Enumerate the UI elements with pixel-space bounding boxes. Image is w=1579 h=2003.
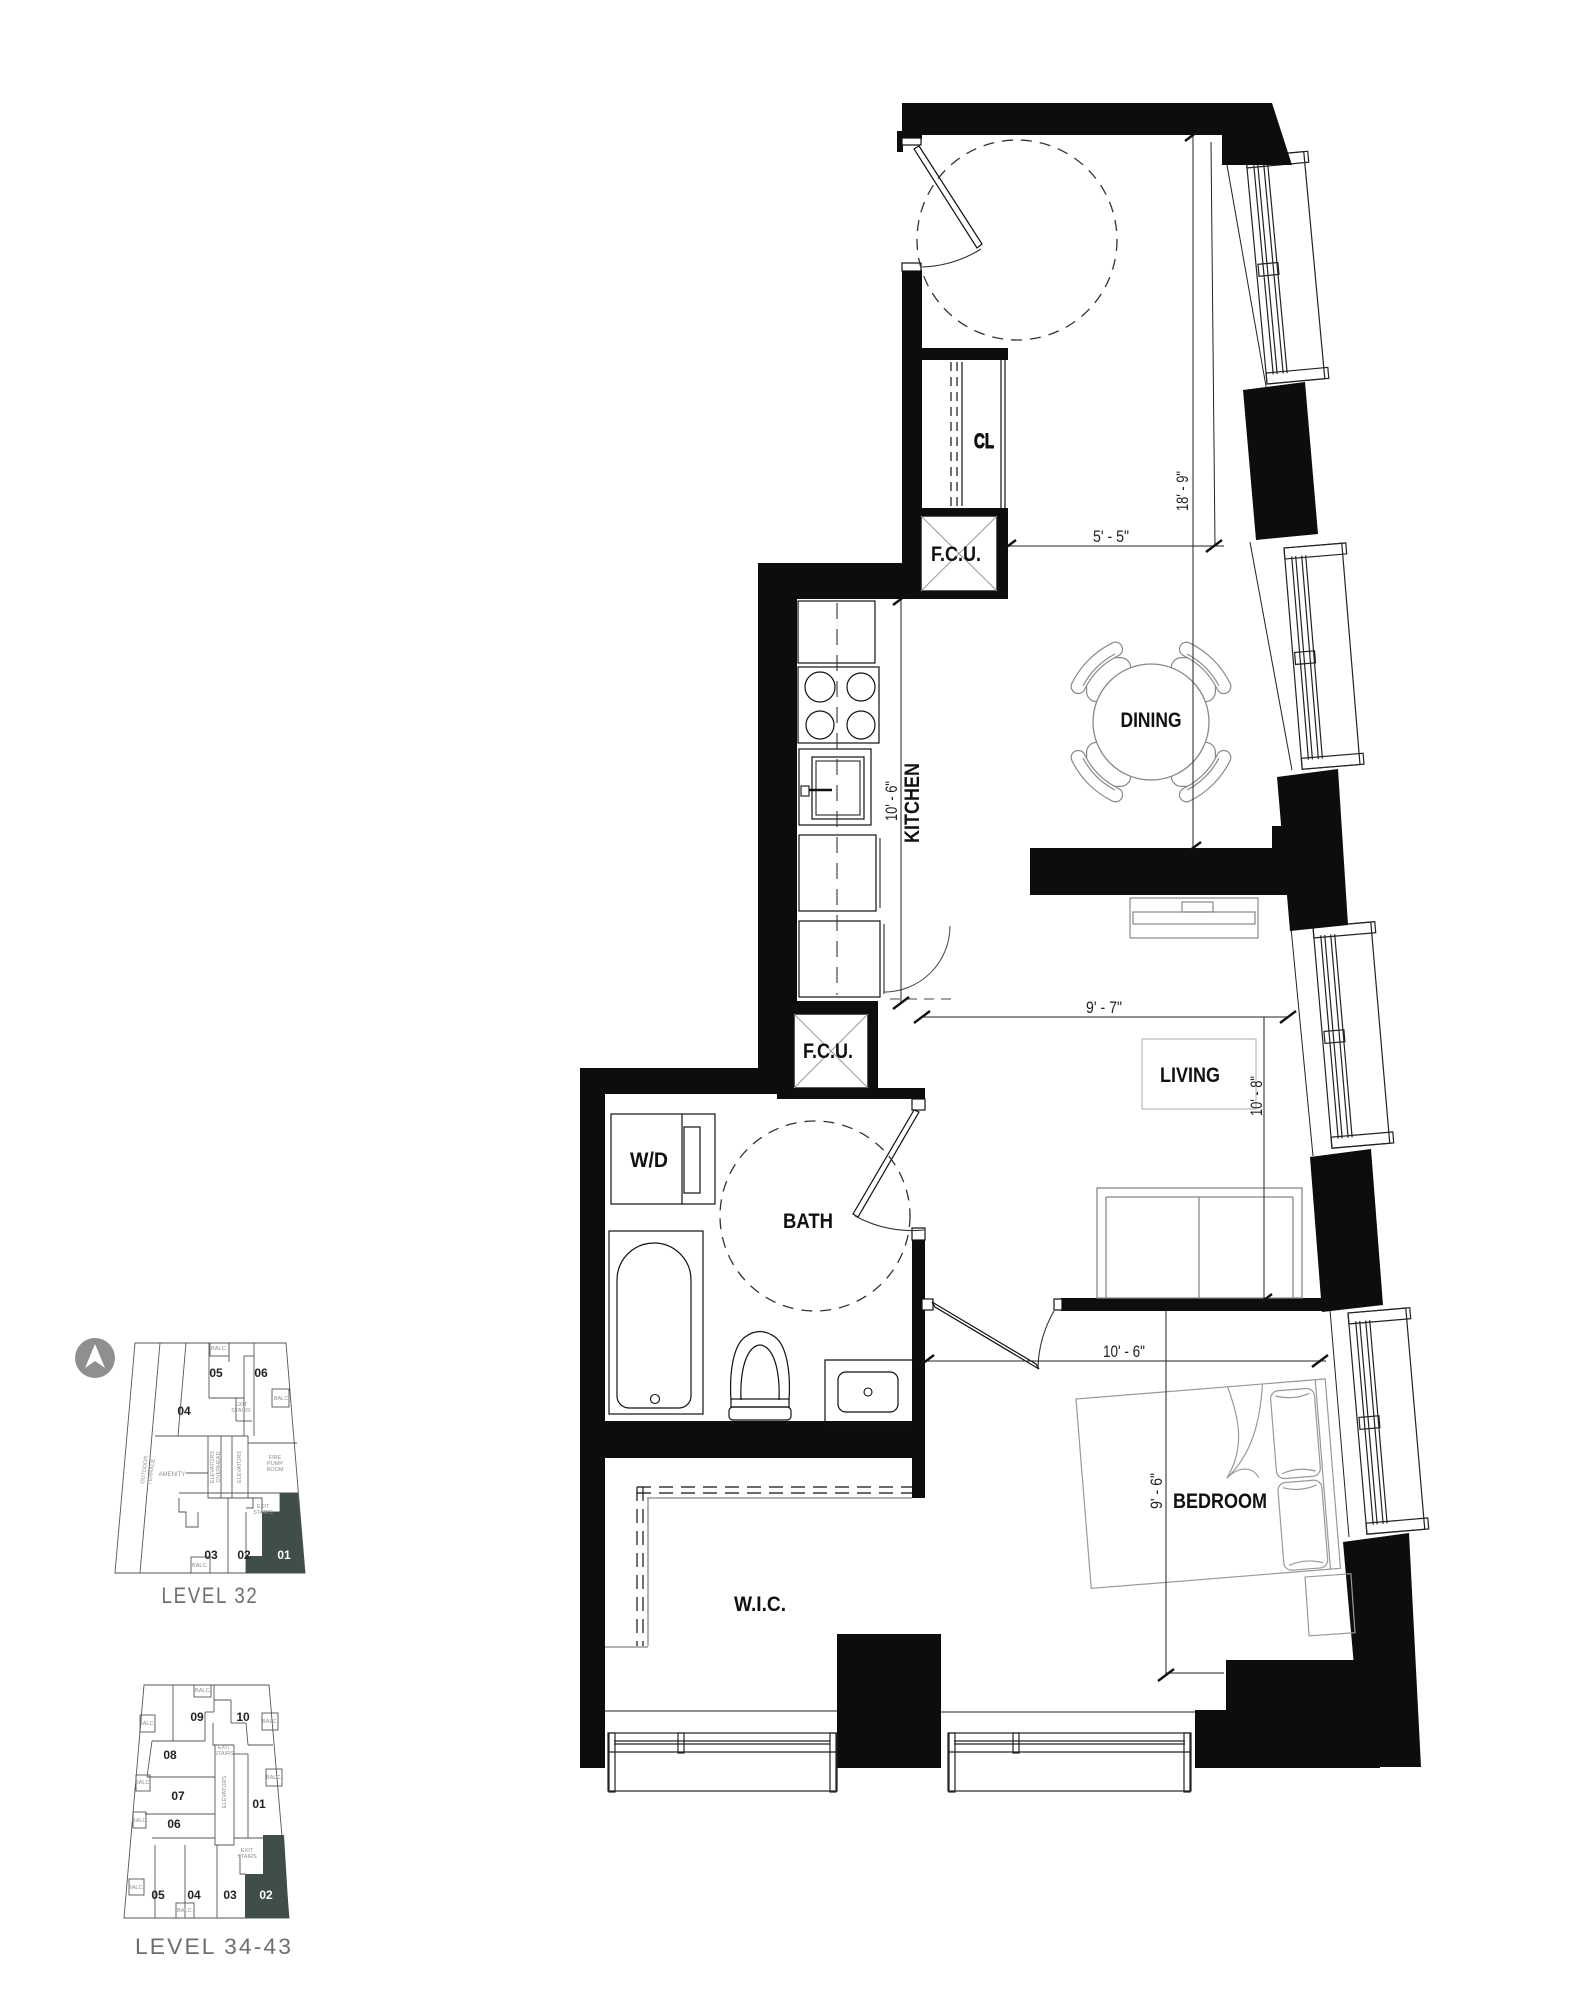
svg-text:02: 02 [259,1888,273,1902]
svg-text:BEDROOM: BEDROOM [1173,1490,1267,1513]
svg-text:W/D: W/D [630,1149,668,1172]
svg-text:BALC.: BALC. [135,1780,151,1786]
svg-text:BALC.: BALC. [262,1719,278,1725]
svg-text:F.C.U.: F.C.U. [803,1040,853,1063]
svg-text:05: 05 [151,1888,165,1902]
svg-text:10' - 8": 10' - 8" [1247,1076,1266,1116]
svg-text:10' - 6": 10' - 6" [882,781,901,821]
svg-text:KITCHEN: KITCHEN [901,763,924,843]
svg-text:BALC.: BALC. [139,1721,155,1727]
svg-text:BALC.: BALC. [132,1818,148,1824]
svg-text:ELEVATORS: ELEVATORS [237,1451,243,1483]
svg-text:01: 01 [277,1548,291,1562]
svg-text:W.I.C.: W.I.C. [734,1593,786,1616]
svg-text:09: 09 [190,1710,204,1724]
svg-text:BALC.: BALC. [211,1346,227,1352]
svg-text:03: 03 [223,1888,237,1902]
svg-text:STAIRS: STAIRS [214,1751,234,1757]
svg-text:03: 03 [204,1548,218,1562]
svg-text:5' - 5": 5' - 5" [1093,527,1129,546]
svg-text:ELEVATORS: ELEVATORS [222,1776,228,1808]
svg-text:10: 10 [236,1710,250,1724]
svg-text:10' - 6": 10' - 6" [1103,1342,1145,1361]
svg-text:LEVEL 34-43: LEVEL 34-43 [135,1934,293,1959]
svg-text:STAIRS: STAIRS [231,1408,251,1414]
svg-text:LEVEL 32: LEVEL 32 [162,1583,259,1608]
svg-text:BALC.: BALC. [266,1775,282,1781]
svg-text:07: 07 [171,1789,185,1803]
svg-text:06: 06 [254,1366,268,1380]
svg-text:STAIRS: STAIRS [253,1510,273,1516]
svg-text:BALC.: BALC. [195,1688,211,1694]
svg-text:02: 02 [237,1548,251,1562]
svg-text:04: 04 [187,1888,201,1902]
svg-text:BALC.: BALC. [177,1908,193,1914]
svg-text:08: 08 [163,1748,177,1762]
svg-text:05: 05 [209,1366,223,1380]
svg-text:CL: CL [974,430,994,453]
svg-text:9' - 7": 9' - 7" [1086,998,1122,1017]
svg-text:BALC.: BALC. [128,1885,144,1891]
svg-text:BALC.: BALC. [192,1563,208,1569]
svg-text:F.C.U.: F.C.U. [931,543,981,566]
svg-text:LIVING: LIVING [1160,1064,1220,1087]
svg-text:9' - 6": 9' - 6" [1147,1473,1166,1509]
svg-text:01: 01 [252,1797,266,1811]
svg-text:18' - 9": 18' - 9" [1173,471,1192,511]
svg-text:DINING: DINING [1121,709,1182,732]
svg-text:06: 06 [167,1817,181,1831]
svg-text:AMENITY: AMENITY [159,1472,186,1478]
svg-text:STAIRS: STAIRS [237,1854,257,1860]
svg-text:04: 04 [177,1404,191,1418]
svg-text:BALC: BALC [274,1396,288,1402]
svg-text:BATH: BATH [783,1210,833,1233]
svg-text:OVERHEAD: OVERHEAD [216,1452,222,1483]
svg-text:ROOM: ROOM [266,1467,284,1473]
